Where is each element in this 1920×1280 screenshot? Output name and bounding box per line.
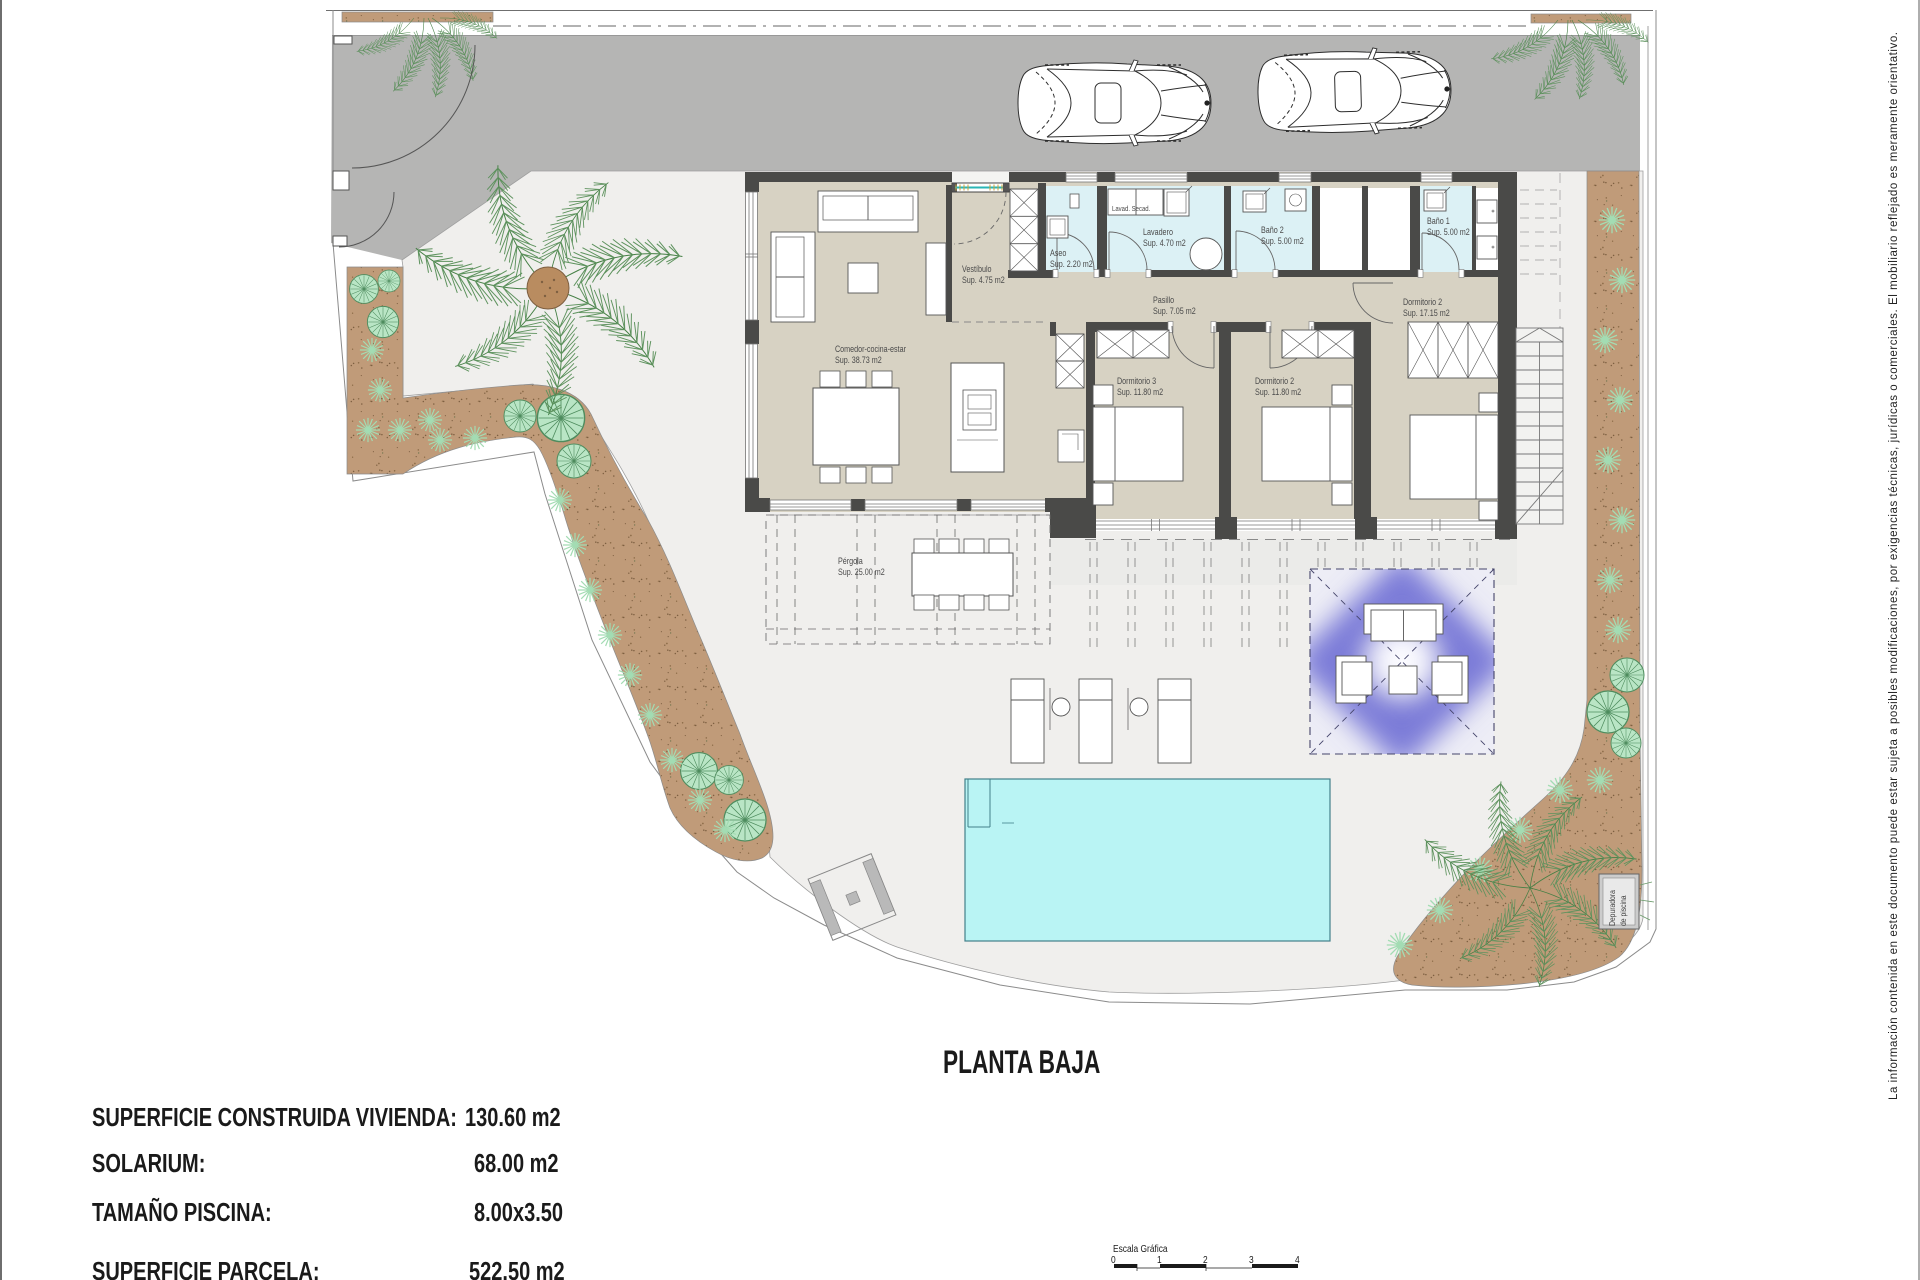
svg-text:Vestíbulo: Vestíbulo [962, 264, 992, 274]
svg-text:Lavadero: Lavadero [1143, 227, 1173, 237]
svg-text:Sup. 11.80 m2: Sup. 11.80 m2 [1117, 387, 1164, 397]
svg-text:Sup. 2.20 m2: Sup. 2.20 m2 [1050, 259, 1093, 269]
svg-text:130.60 m2: 130.60 m2 [465, 1102, 561, 1131]
svg-text:Sup. 38.73 m2: Sup. 38.73 m2 [835, 355, 882, 365]
svg-text:522.50 m2: 522.50 m2 [469, 1256, 565, 1280]
svg-text:SOLARIUM:: SOLARIUM: [92, 1148, 205, 1177]
svg-text:68.00 m2: 68.00 m2 [474, 1148, 559, 1177]
svg-text:Sup. 4.75 m2: Sup. 4.75 m2 [962, 275, 1005, 285]
svg-text:8.00x3.50: 8.00x3.50 [474, 1197, 563, 1226]
svg-text:Depuradora: Depuradora [1607, 889, 1617, 926]
svg-text:Baño 1: Baño 1 [1427, 216, 1450, 226]
svg-text:SUPERFICIE PARCELA:: SUPERFICIE PARCELA: [92, 1256, 319, 1280]
svg-text:PLANTA BAJA: PLANTA BAJA [943, 1044, 1100, 1080]
svg-text:Pasillo: Pasillo [1153, 295, 1175, 305]
svg-text:Dormitorio 2: Dormitorio 2 [1403, 297, 1443, 307]
svg-text:Sup. 17.15 m2: Sup. 17.15 m2 [1403, 308, 1450, 318]
svg-text:TAMAÑO PISCINA:: TAMAÑO PISCINA: [92, 1196, 272, 1226]
svg-text:Sup. 4.70 m2: Sup. 4.70 m2 [1143, 238, 1186, 248]
svg-text:Lavad. Secad.: Lavad. Secad. [1112, 205, 1150, 213]
svg-text:Sup. 5.00 m2: Sup. 5.00 m2 [1427, 227, 1470, 237]
svg-text:Sup. 7.05 m2: Sup. 7.05 m2 [1153, 306, 1196, 316]
svg-text:Sup. 5.00 m2: Sup. 5.00 m2 [1261, 236, 1304, 246]
svg-text:Sup. 11.80 m2: Sup. 11.80 m2 [1255, 387, 1302, 397]
svg-text:Dormitorio 3: Dormitorio 3 [1117, 376, 1157, 386]
svg-text:de piscina: de piscina [1618, 895, 1628, 926]
svg-text:SUPERFICIE CONSTRUIDA VIVIENDA: SUPERFICIE CONSTRUIDA VIVIENDA: [92, 1102, 457, 1131]
svg-text:Baño 2: Baño 2 [1261, 225, 1284, 235]
svg-text:Pérgola: Pérgola [838, 556, 863, 566]
svg-text:Aseo: Aseo [1050, 248, 1067, 258]
svg-text:Sup. 25.00 m2: Sup. 25.00 m2 [838, 567, 885, 577]
svg-text:Comedor-cocina-estar: Comedor-cocina-estar [835, 344, 906, 354]
svg-text:Dormitorio 2: Dormitorio 2 [1255, 376, 1295, 386]
svg-text:La información contenida en es: La información contenida en este documen… [1888, 32, 1900, 1100]
